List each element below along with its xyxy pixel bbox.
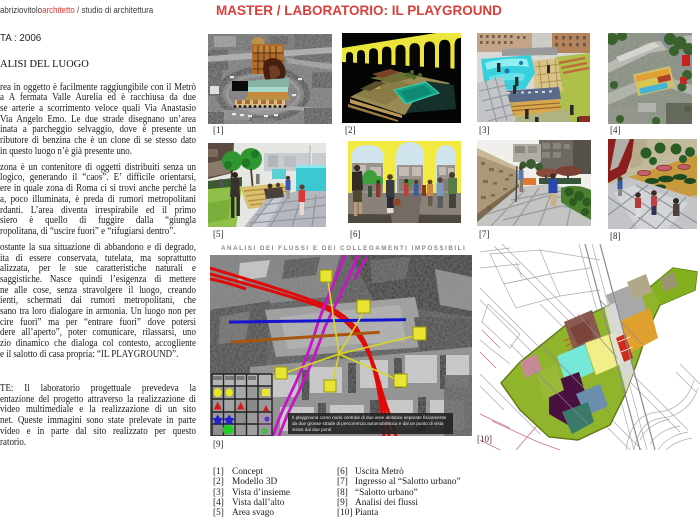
svg-text:Il playground come nodo centra: Il playground come nodo centrale di due …	[292, 415, 447, 420]
svg-text:da due grosse strade di percor: da due grosse strade di percorrenza auto…	[292, 421, 444, 426]
svg-text:visivo dai due ponti: visivo dai due ponti	[292, 427, 331, 432]
